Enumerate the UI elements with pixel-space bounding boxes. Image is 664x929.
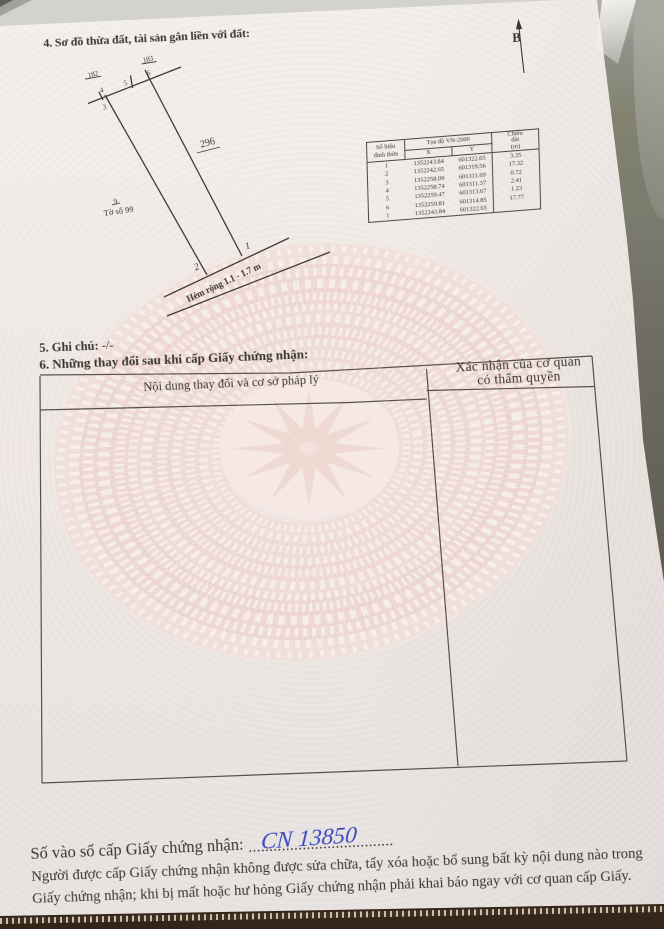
svg-text:B: B [512, 30, 522, 45]
